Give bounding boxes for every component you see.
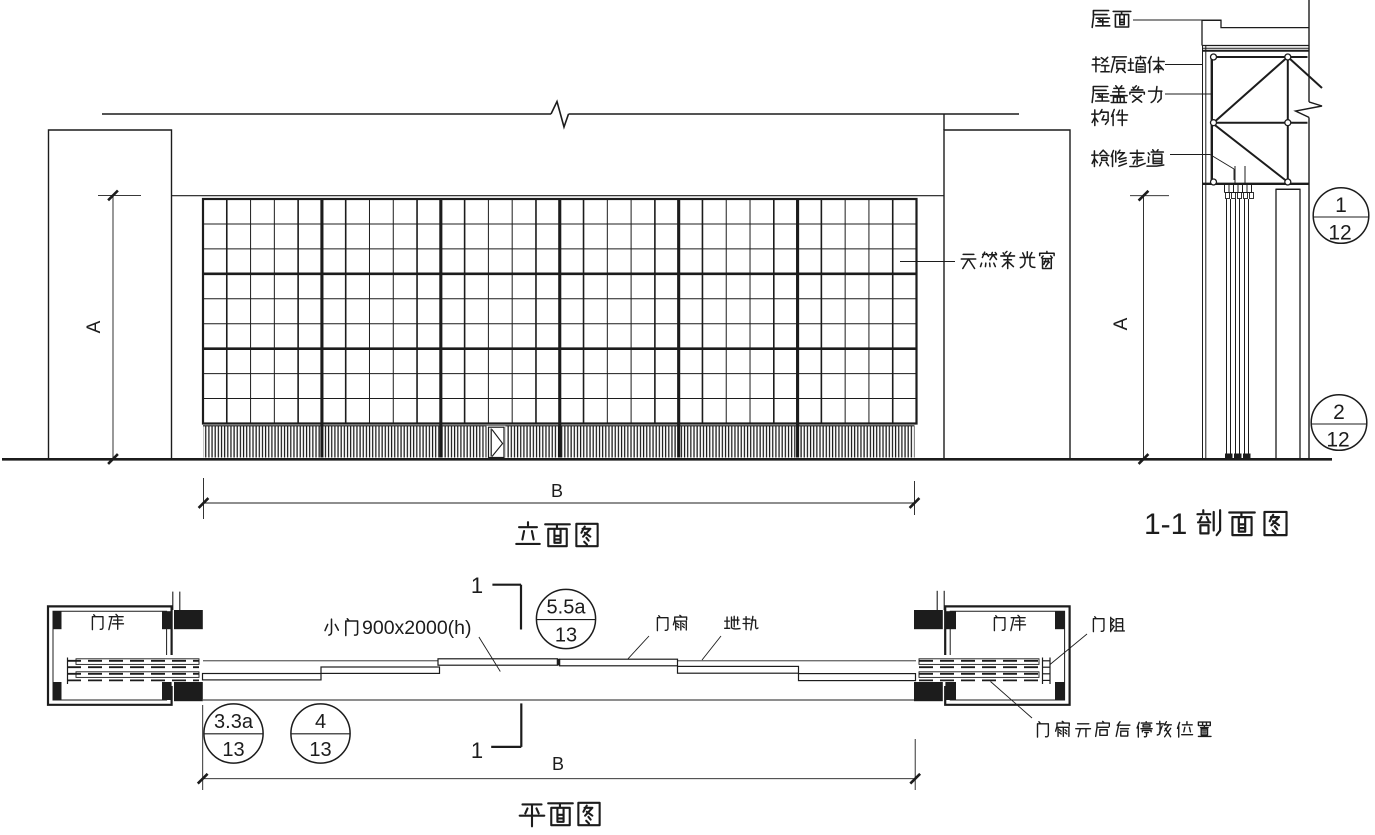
svg-text:1: 1 [471, 738, 483, 763]
svg-text:B: B [551, 481, 563, 501]
svg-text:1: 1 [471, 573, 483, 598]
svg-text:2: 2 [1333, 401, 1345, 424]
svg-text:13: 13 [222, 739, 244, 761]
svg-text:1: 1 [1335, 194, 1347, 217]
svg-text:5.5a: 5.5a [547, 597, 587, 619]
svg-text:3.3a: 3.3a [214, 711, 254, 733]
svg-text:B: B [552, 754, 564, 774]
svg-text:1-1: 1-1 [1144, 508, 1187, 541]
svg-text:12: 12 [1326, 429, 1349, 452]
svg-text:A: A [1111, 317, 1132, 330]
svg-text:4: 4 [315, 711, 326, 733]
svg-text:A: A [84, 320, 105, 333]
svg-text:13: 13 [309, 739, 331, 761]
svg-text:900x2000(h): 900x2000(h) [362, 617, 472, 639]
svg-text:12: 12 [1328, 222, 1351, 245]
svg-text:13: 13 [555, 625, 577, 647]
